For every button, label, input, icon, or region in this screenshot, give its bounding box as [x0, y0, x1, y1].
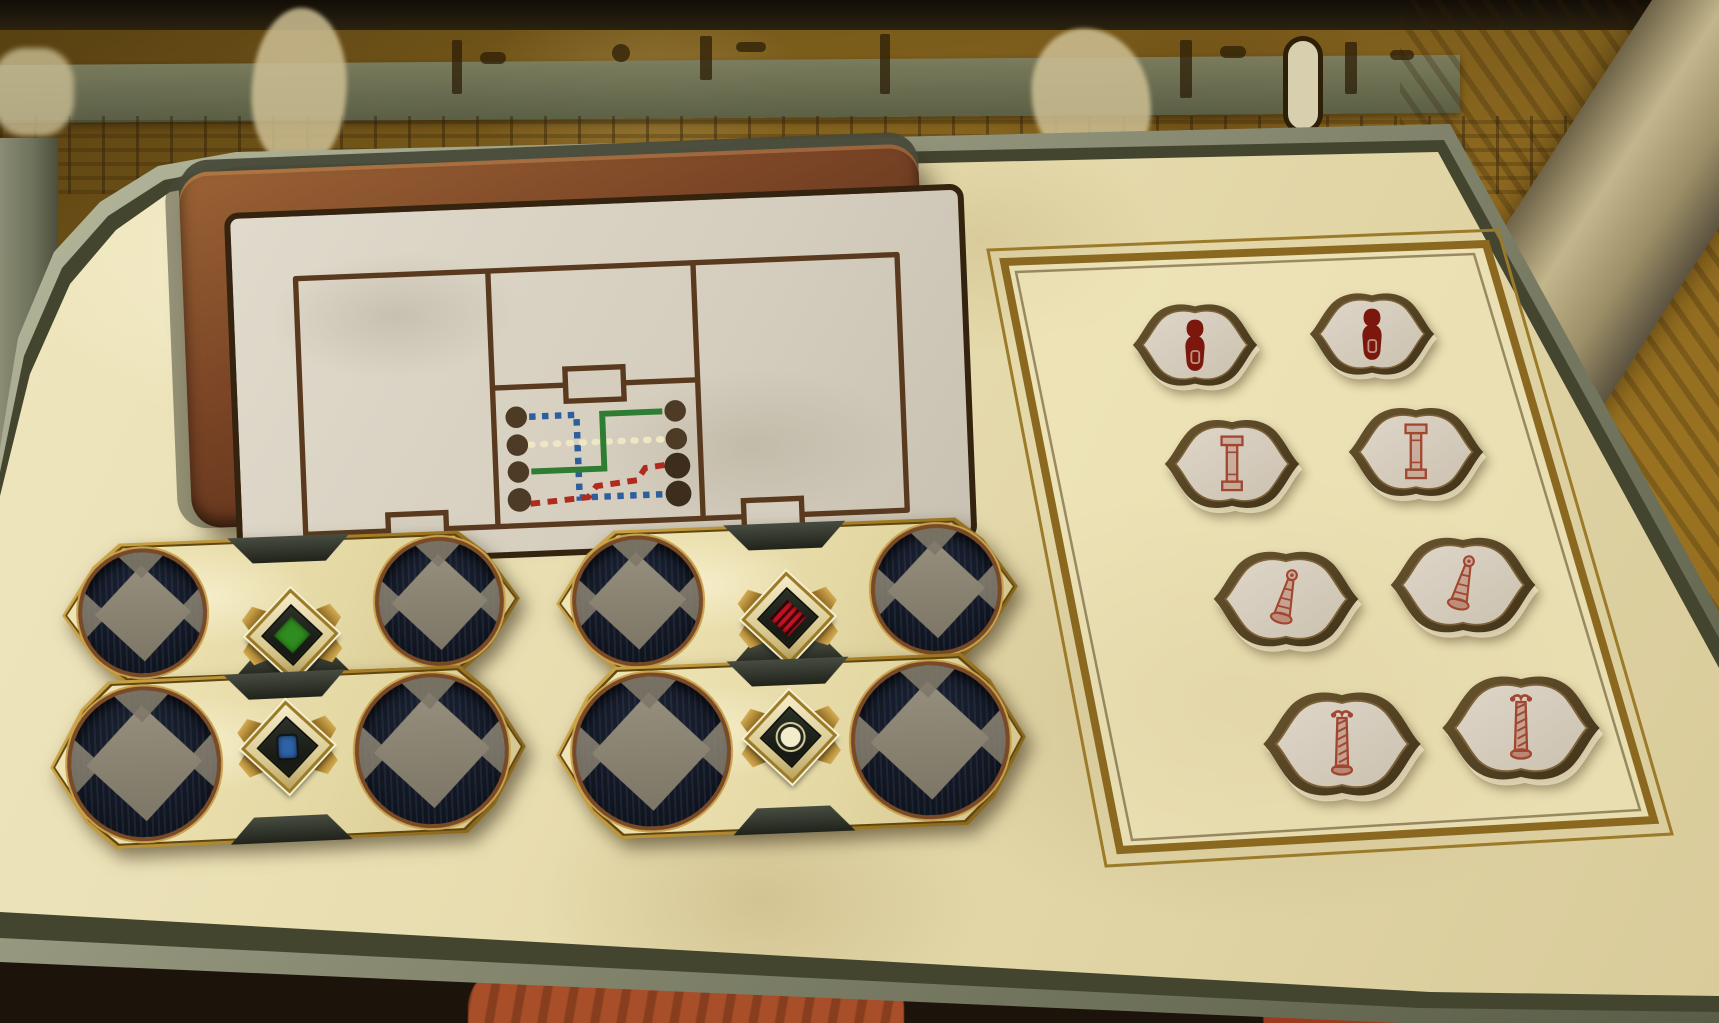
diamond-motif [888, 541, 985, 638]
diamond-motif [86, 706, 202, 822]
diamond-motif [569, 696, 609, 815]
tomb-puzzle-scene [0, 0, 1719, 1023]
gem-socket [757, 587, 819, 649]
diamond-motif [973, 677, 1013, 796]
gem-bezel [744, 691, 837, 784]
diamond-motif [570, 555, 603, 652]
green-gem [274, 617, 311, 654]
slider-plate-bottom-right[interactable] [553, 651, 1030, 842]
gem-bezel [241, 700, 334, 793]
diamond-motif [871, 681, 990, 800]
gem-mount [237, 697, 337, 797]
gem-bezel [245, 588, 338, 681]
slider-plate-top-right[interactable] [553, 515, 1020, 675]
diamond-motif [971, 538, 1004, 635]
gem-mount [741, 688, 841, 788]
diamond-motif [76, 568, 109, 664]
diamond-motif [95, 565, 191, 661]
red-gem [770, 599, 807, 636]
diamond-motif [474, 550, 507, 646]
blue-gem [276, 733, 299, 760]
gem-bezel [741, 571, 834, 664]
white-gem [772, 719, 809, 756]
diamond-motif [474, 688, 513, 804]
gem-socket [760, 706, 822, 768]
gem-mount [738, 568, 838, 668]
diamond-motif [63, 710, 102, 826]
diamond-motif [374, 692, 490, 808]
diamond-motif [392, 553, 488, 649]
slider-plate-top-left[interactable] [59, 528, 522, 685]
gem-mount [242, 585, 342, 685]
diamond-motif [589, 552, 686, 649]
gem-socket [256, 716, 318, 778]
slider-layer [0, 0, 1719, 1023]
slider-plate-bottom-left[interactable] [46, 662, 529, 851]
gem-socket [261, 604, 323, 666]
diamond-motif [592, 692, 711, 811]
